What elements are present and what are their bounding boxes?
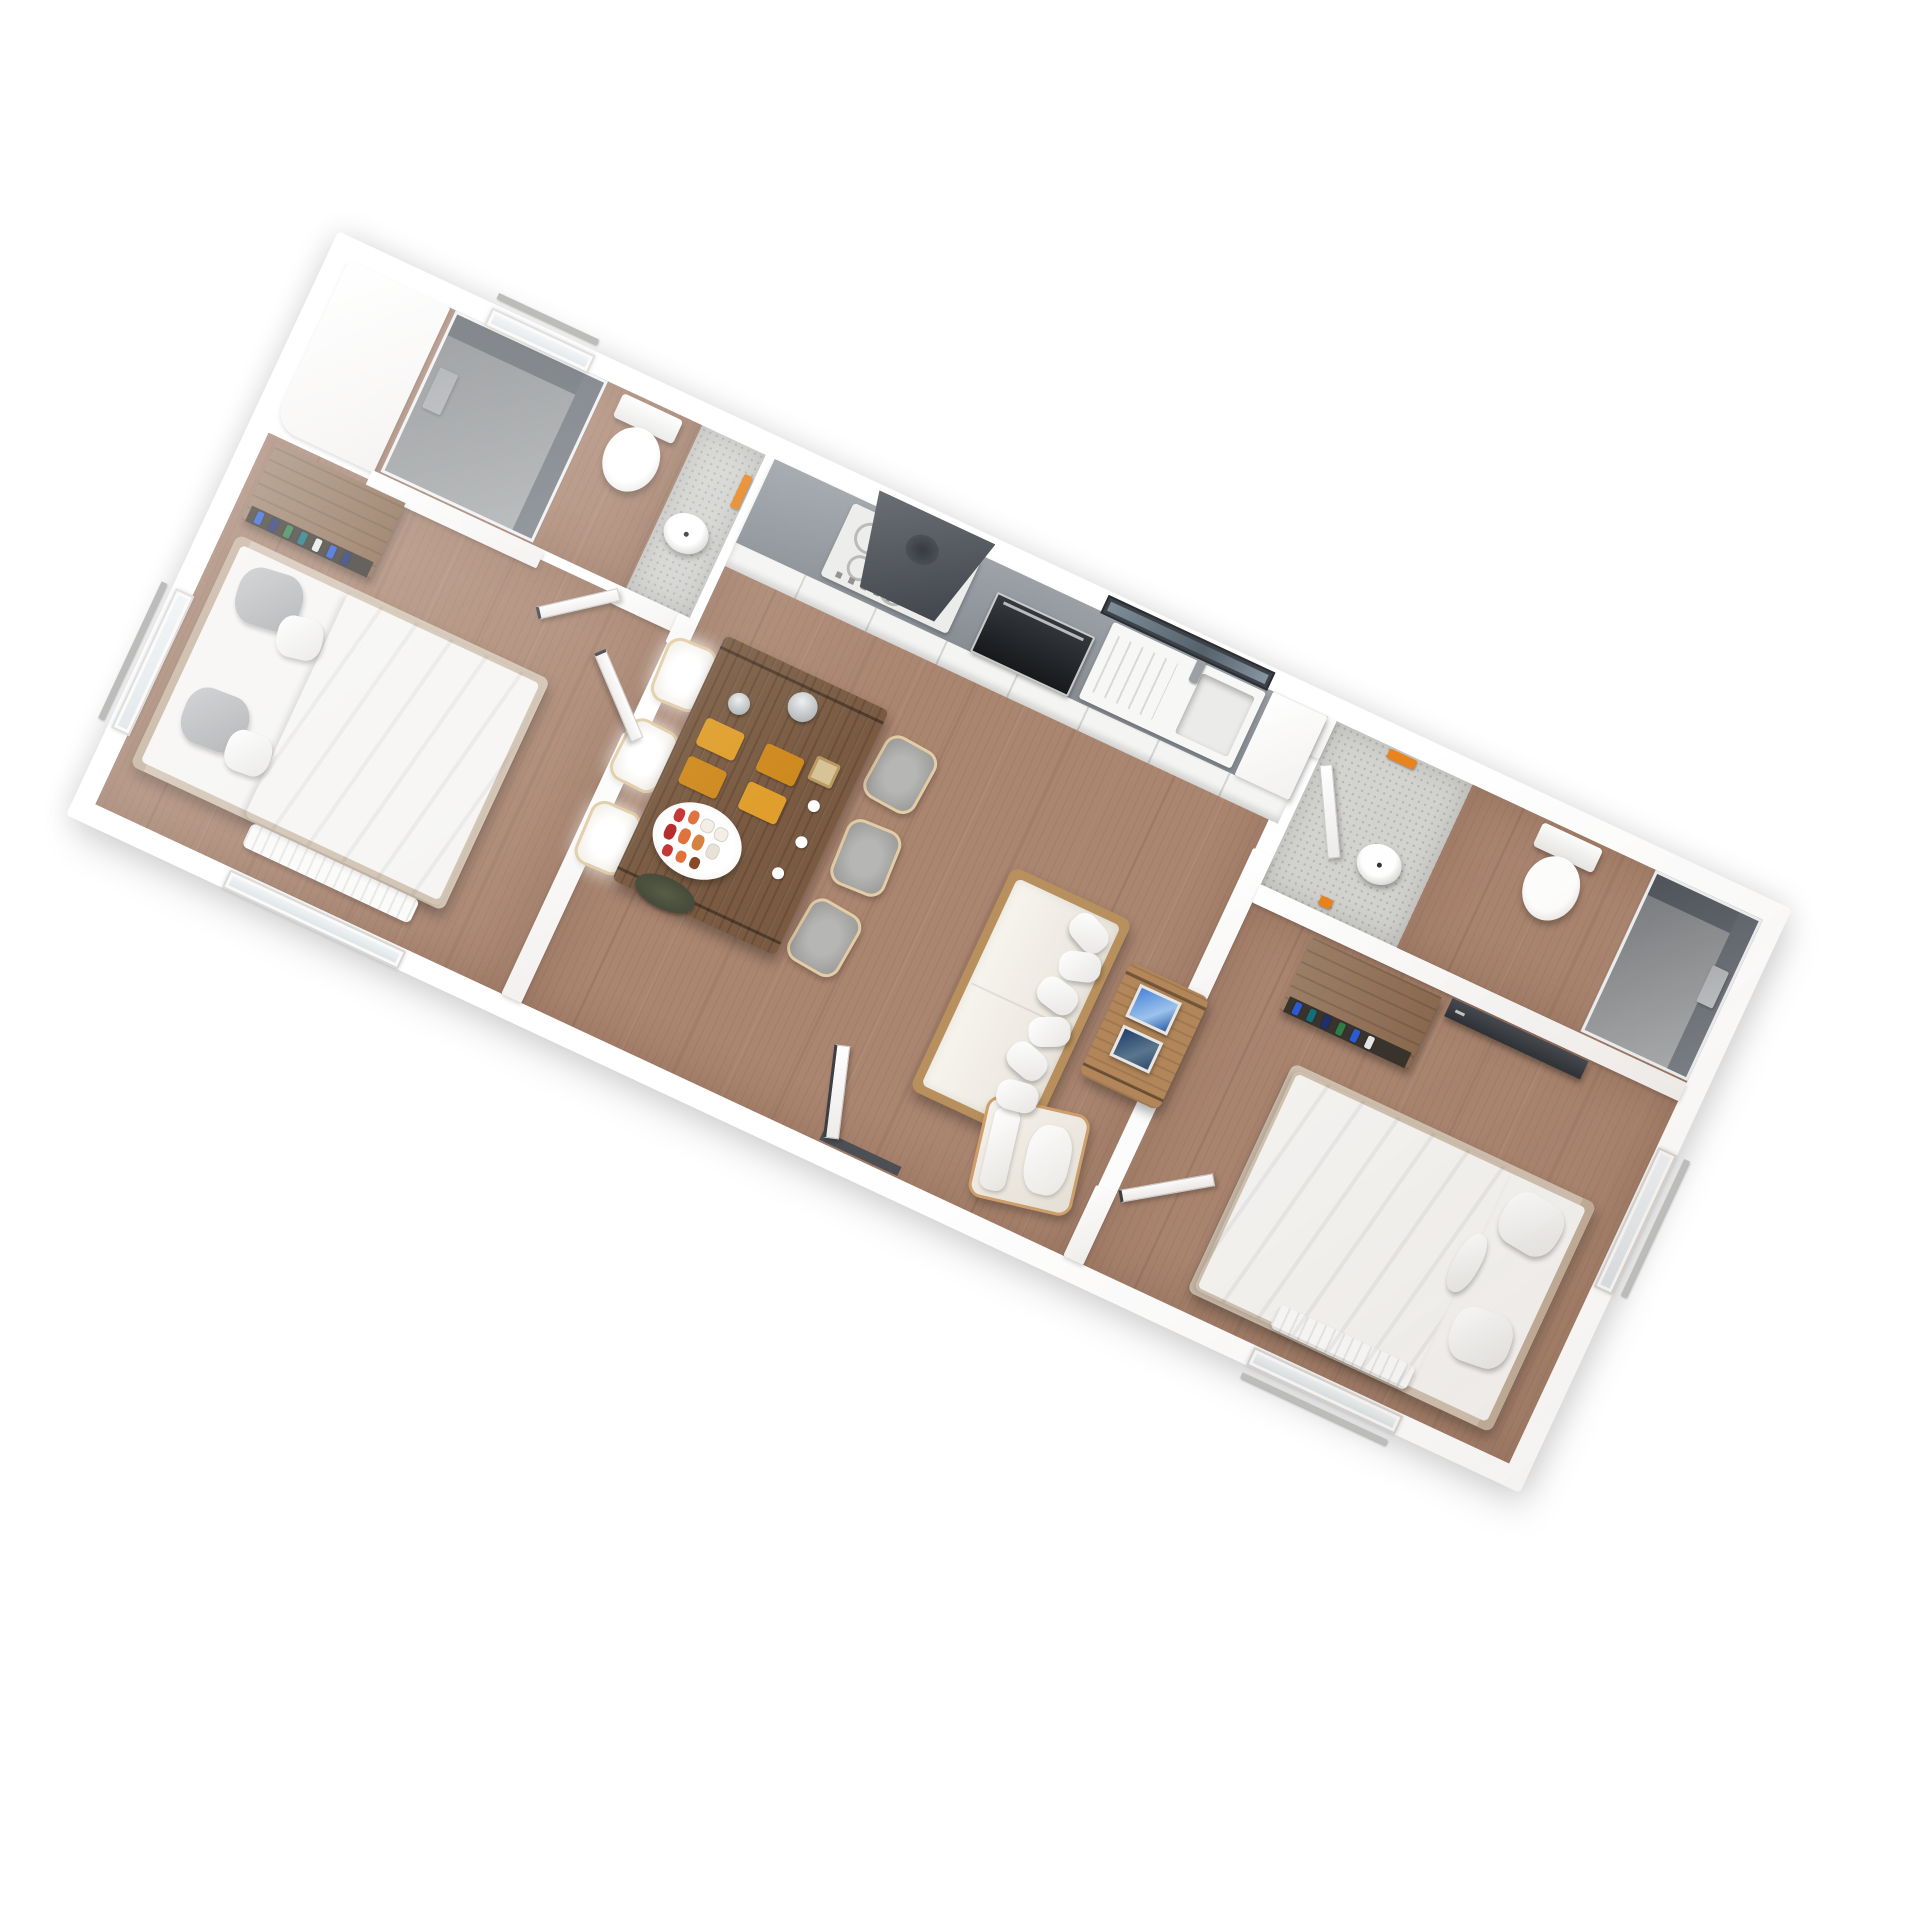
sushi-piece [703,842,722,862]
armchair-back-cushion [978,1105,1022,1193]
sushi-piece [660,843,674,858]
sushi-piece [686,809,701,826]
hood-vent [900,529,943,571]
picture-frame [1109,1024,1163,1073]
sofa-cushion [1028,1016,1071,1047]
sushi-piece [676,827,693,846]
sink-drainer [1092,636,1178,720]
armchair-seat-cushion [1018,1121,1077,1199]
closet-handle [1455,1010,1465,1017]
picture-frame [1125,984,1182,1036]
sushi-piece [662,822,679,841]
sushi-piece [672,807,687,824]
sushi-piece [688,855,702,870]
sushi-piece [712,825,731,844]
apartment-plan [95,260,1762,1463]
sushi-piece [690,833,707,852]
sushi-piece [674,849,688,864]
render-canvas [0,0,1920,1920]
